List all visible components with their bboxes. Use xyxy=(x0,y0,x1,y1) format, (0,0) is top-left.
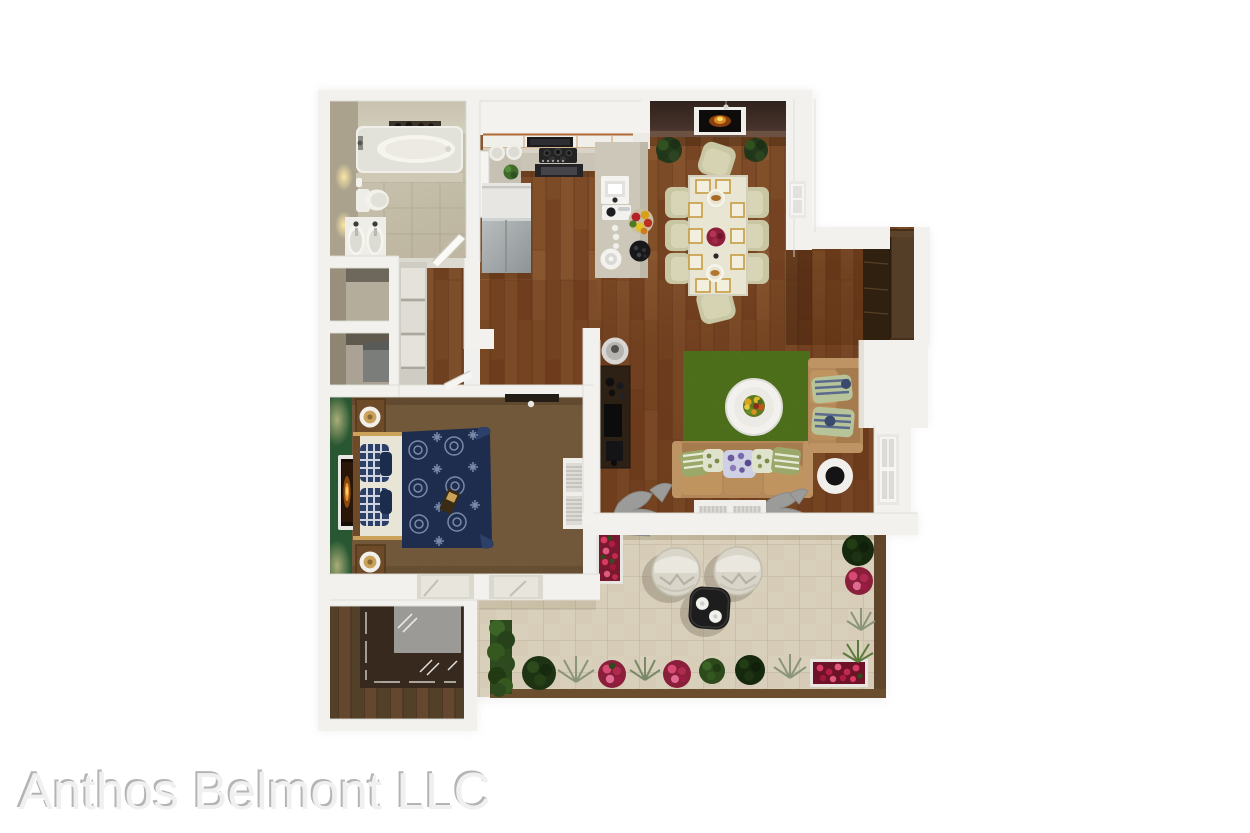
svg-text:Anthos Belmont LLC: Anthos Belmont LLC xyxy=(19,762,491,820)
